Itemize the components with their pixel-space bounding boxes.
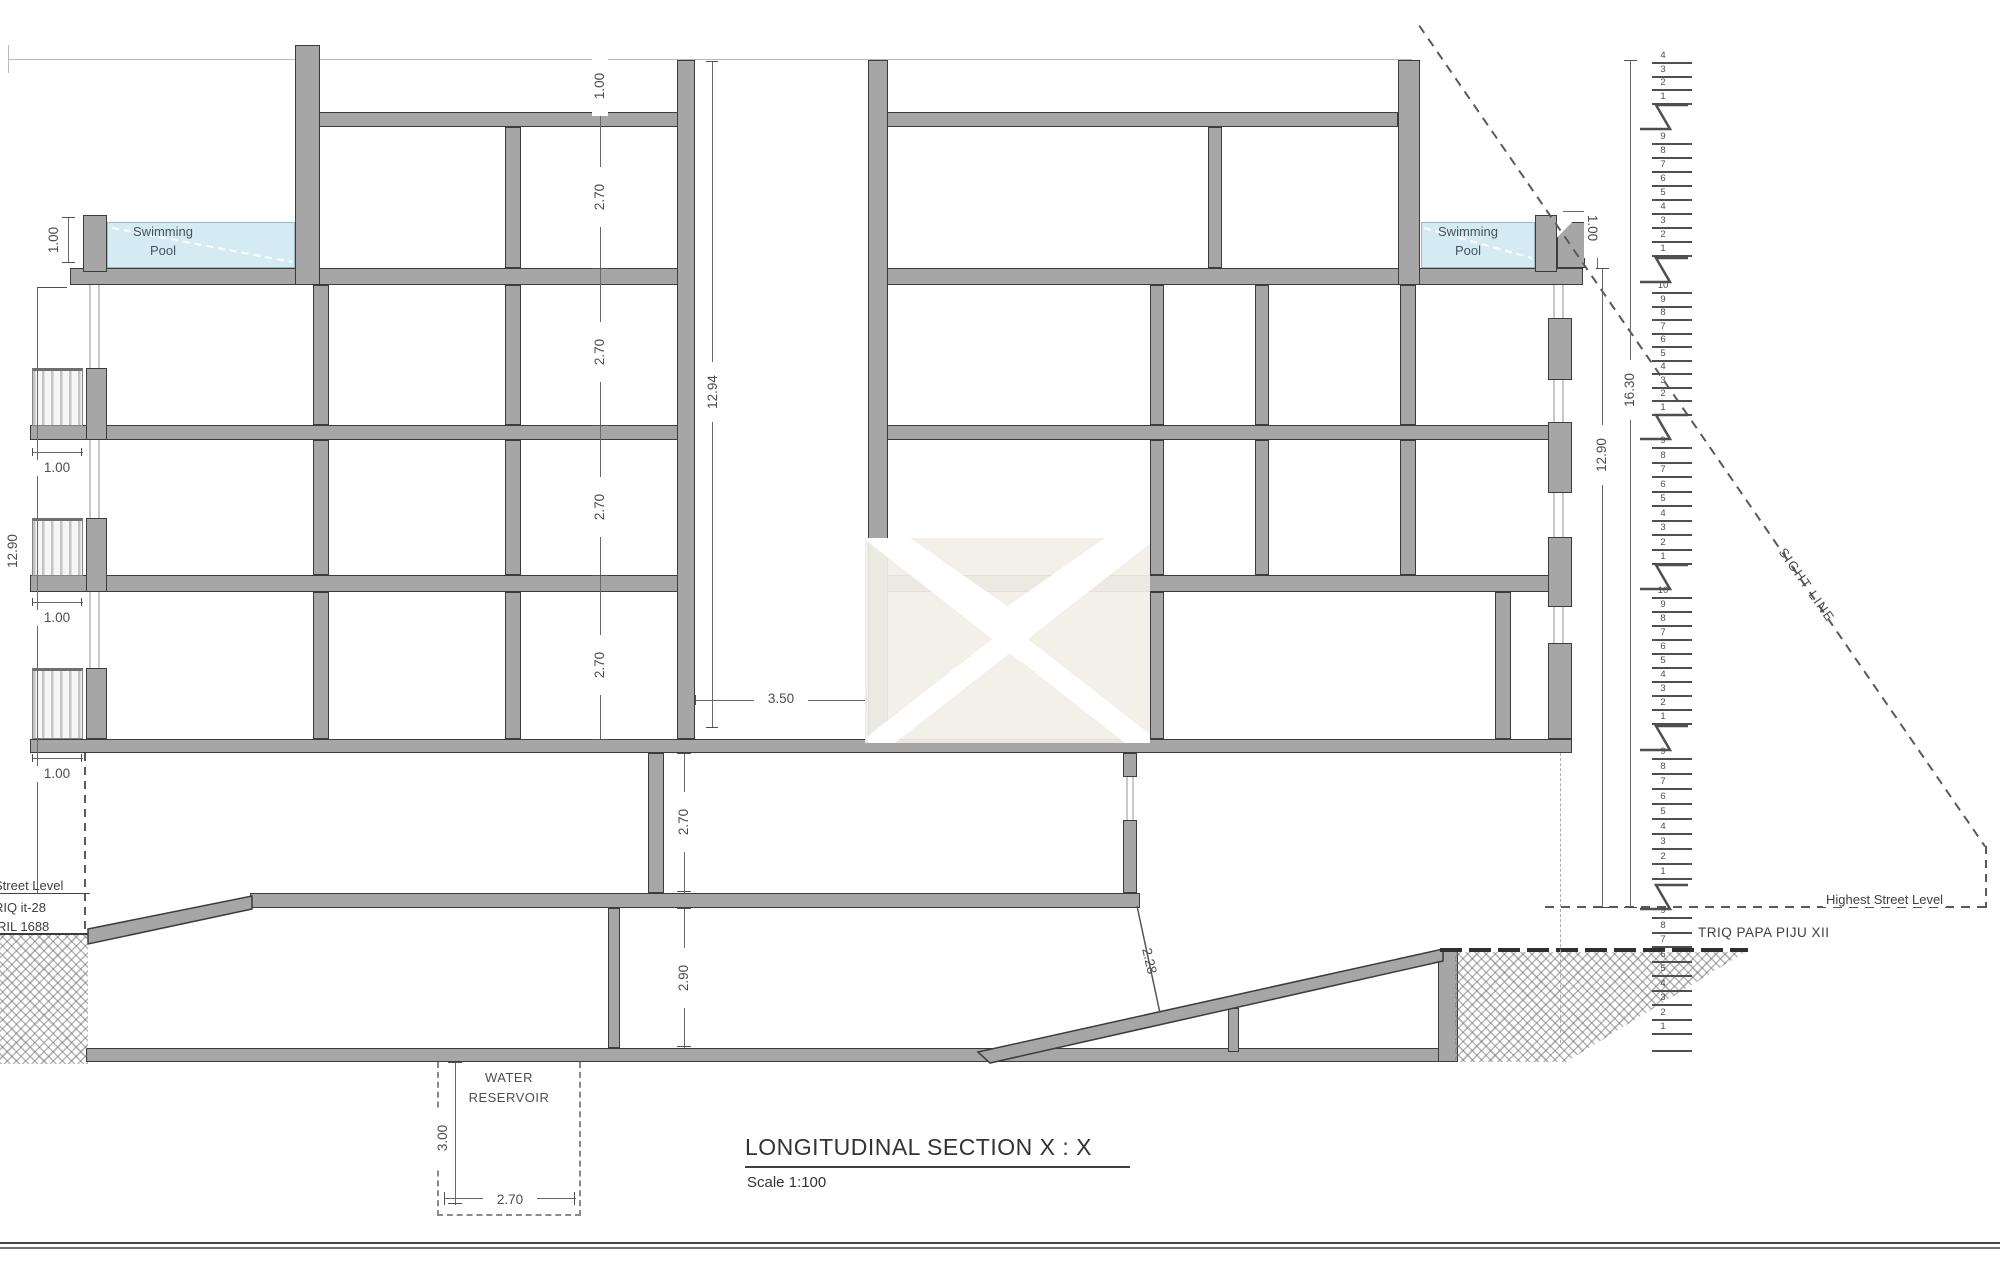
- dimension-tick: [448, 1062, 462, 1063]
- column: [1150, 285, 1164, 425]
- balcony-railing: [32, 518, 83, 576]
- dimension-tick: [574, 1192, 575, 1205]
- stair-step-number: 7: [1653, 464, 1673, 475]
- column: [505, 127, 521, 268]
- dimension-tick: [695, 695, 696, 705]
- basement-wall: [1123, 753, 1137, 777]
- stair-step-number: 1: [1653, 711, 1673, 722]
- dim-floor-height: 2.70: [592, 477, 608, 537]
- ramp-support-post: [1228, 1008, 1239, 1052]
- roof-slab-left: [308, 112, 695, 127]
- stair-step-number: 4: [1653, 978, 1673, 989]
- facade-pier: [1548, 318, 1572, 380]
- stair-step-number: 5: [1653, 963, 1673, 974]
- dimension-line: [32, 452, 83, 453]
- stair-section-ruler: 4321987654321109876543219876543211098765…: [1646, 0, 1694, 1265]
- foundation-slab: [86, 1048, 1458, 1062]
- stair-step-number: 7: [1653, 321, 1673, 332]
- dimension-tick: [1596, 268, 1609, 269]
- site-boundary-dashed-left: [84, 753, 86, 935]
- reservoir-outline: [437, 1214, 581, 1216]
- swimming-pool-label-right-line2: Pool: [1415, 243, 1521, 258]
- stair-step-number: 5: [1653, 187, 1673, 198]
- stair-step-number: 6: [1653, 334, 1673, 345]
- column: [313, 592, 329, 739]
- dimension-line: [455, 1062, 456, 1205]
- stair-step-line: [1652, 788, 1692, 790]
- dimension-tick: [592, 425, 608, 426]
- pool-deck-slab-left: [70, 268, 695, 285]
- dim-balcony-width: 1.00: [32, 766, 82, 782]
- swimming-pool-label-right-line1: Swimming: [1415, 224, 1521, 239]
- sight-line-vertical-end: [1985, 846, 1987, 908]
- swimming-pool-label-left-line1: Swimming: [113, 224, 213, 239]
- dim-pool-depth: 1.00: [46, 210, 62, 270]
- stair-step-number: 8: [1653, 613, 1673, 624]
- ground-floor-slab: [30, 739, 1572, 753]
- stair-step-number: 5: [1653, 655, 1673, 666]
- roof-slab-right: [868, 112, 1398, 127]
- dim-floor-height: 2.70: [592, 635, 608, 695]
- stair-step-number: 8: [1653, 307, 1673, 318]
- dim-reservoir-depth: 3.00: [435, 1108, 451, 1168]
- car-ramp-slab: [978, 949, 1443, 1063]
- dimension-tick: [706, 61, 718, 62]
- window-opening: [1553, 285, 1564, 318]
- floor-slab: [30, 425, 695, 440]
- stair-step-line: [1652, 758, 1692, 760]
- water-reservoir-label-line2: RESERVOIR: [444, 1090, 574, 1105]
- column: [505, 440, 521, 575]
- dim-reservoir-width: 2.70: [483, 1192, 537, 1208]
- facade-pier: [1548, 422, 1572, 493]
- stair-step-line: [1652, 818, 1692, 820]
- dimension-tick: [81, 448, 82, 456]
- stair-step-number: 1: [1653, 91, 1673, 102]
- facade-pier: [1548, 537, 1572, 607]
- dimension-line: [68, 217, 69, 263]
- dim-floor-height: 2.70: [592, 167, 608, 227]
- stair-step-line: [1652, 1033, 1692, 1035]
- stair-step-number: 4: [1653, 508, 1673, 519]
- balcony-railing: [32, 368, 83, 426]
- stair-landing-break-icon: [1636, 722, 1692, 754]
- stair-step-number: 4: [1653, 361, 1673, 372]
- pool-deck-slab-right: [868, 268, 1583, 285]
- parapet-top-line-end-tick: [8, 45, 9, 73]
- street-ramp-slab: [88, 896, 252, 944]
- stair-step-number: 2: [1653, 851, 1673, 862]
- stair-step-number: 8: [1653, 920, 1673, 931]
- window-opening: [89, 285, 100, 368]
- window-opening: [1553, 380, 1564, 422]
- stair-step-number: 4: [1653, 50, 1673, 61]
- street-level-label: Street Level: [0, 878, 63, 893]
- sheet-border-line: [0, 1242, 2000, 1249]
- stair-step-number: 6: [1653, 791, 1673, 802]
- dimension-tick: [32, 598, 33, 606]
- basement-wall: [1123, 820, 1137, 893]
- column: [1150, 440, 1164, 575]
- watermark: [865, 538, 1150, 743]
- dimension-tick: [1596, 907, 1609, 908]
- stair-step-number: 5: [1653, 806, 1673, 817]
- dim-gap-width: 3.50: [754, 691, 808, 707]
- column: [1400, 440, 1416, 575]
- stair-step-number: 5: [1653, 348, 1673, 359]
- ground-hatch-right: [1455, 951, 1747, 1062]
- street-name-left-label: TRIQ it-28: [0, 900, 46, 915]
- street-ground-line-right: [1440, 948, 1748, 952]
- basement-opening: [1126, 777, 1134, 820]
- stair-step-line: [1652, 1050, 1692, 1052]
- dim-balcony-width: 1.00: [32, 460, 82, 476]
- section-drawing-canvas: 1.00 2.70 2.70 2.70 2.70 12.94 12.90 1.0…: [0, 0, 2000, 1265]
- street-name-right-label: TRIQ PAPA PIJU XII: [1698, 925, 1830, 940]
- stair-step-number: 3: [1653, 836, 1673, 847]
- stair-landing-break-icon: [1636, 411, 1692, 443]
- stair-step-number: 8: [1653, 145, 1673, 156]
- window-opening: [89, 440, 100, 518]
- balcony-railing: [32, 668, 83, 739]
- column: [505, 592, 521, 739]
- stair-step-number: 2: [1653, 537, 1673, 548]
- stair-step-number: 3: [1653, 375, 1673, 386]
- wall: [1495, 592, 1511, 739]
- street-level-underline: [0, 893, 90, 894]
- stair-step-number: 1: [1653, 866, 1673, 877]
- dim-subbasement-height: 2.90: [676, 948, 692, 1008]
- dimension-tick: [677, 908, 691, 909]
- stair-step-number: 3: [1653, 522, 1673, 533]
- column: [313, 440, 329, 575]
- stair-step-number: 4: [1653, 201, 1673, 212]
- pool-wall: [83, 215, 107, 272]
- stair-step-number: 6: [1653, 949, 1673, 960]
- dimension-tick: [61, 262, 75, 263]
- stair-landing-break-icon: [1636, 881, 1692, 913]
- stair-step-number: 6: [1653, 479, 1673, 490]
- stair-step-number: 7: [1653, 776, 1673, 787]
- building-line-dashed-right: [1560, 753, 1561, 1048]
- dimension-line: [32, 602, 83, 603]
- window-opening: [1553, 493, 1564, 537]
- dim-balcony-width: 1.00: [32, 610, 82, 626]
- facade-pier: [1548, 643, 1572, 739]
- stair-step-number: 2: [1653, 697, 1673, 708]
- parapet-top-line: [8, 59, 1412, 60]
- dimension-tick: [81, 598, 82, 606]
- stair-step-line: [1652, 863, 1692, 865]
- dimension-line: [1602, 268, 1603, 908]
- dimension-tick: [677, 1046, 691, 1047]
- dim-right-total-height: 12.90: [1594, 425, 1610, 485]
- watermark-stroke: [998, 538, 1131, 627]
- column: [1208, 127, 1222, 268]
- drawing-scale: Scale 1:100: [747, 1174, 826, 1191]
- stair-step-number: 6: [1653, 641, 1673, 652]
- stair-step-number: 8: [1653, 761, 1673, 772]
- dimension-tick: [32, 754, 33, 762]
- stair-step-number: 1: [1653, 1021, 1673, 1032]
- facade-pier: [86, 368, 107, 440]
- stair-step-number: 3: [1653, 992, 1673, 1003]
- basement-column: [608, 908, 620, 1048]
- dimension-tick: [592, 268, 608, 269]
- column: [505, 285, 521, 425]
- watermark-stroke: [883, 538, 1016, 627]
- dimension-tick: [677, 753, 691, 754]
- street-ref-left-label: RIL 1688: [0, 919, 49, 934]
- sight-line-label: SIGHT LINE: [1776, 545, 1838, 625]
- reservoir-outline: [579, 1062, 581, 1216]
- stair-step-number: 9: [1653, 599, 1673, 610]
- dim-basement-height: 2.70: [676, 792, 692, 852]
- dimension-tick: [592, 739, 608, 740]
- dimension-line: [32, 758, 83, 759]
- stair-step-number: 2: [1653, 388, 1673, 399]
- water-reservoir-label-line1: WATER: [459, 1070, 559, 1085]
- stair-step-number: 4: [1653, 821, 1673, 832]
- dimension-line: [1630, 60, 1631, 908]
- stair-step-line: [1652, 803, 1692, 805]
- dim-left-total-height: 12.90: [5, 521, 21, 581]
- dim-floor-height: 2.70: [592, 322, 608, 382]
- core-wall: [295, 45, 320, 285]
- stair-step-line: [1652, 878, 1692, 880]
- dimension-tick: [1624, 60, 1637, 61]
- floor-slab: [30, 575, 695, 592]
- stair-step-number: 4: [1653, 669, 1673, 680]
- dim-parapet-height: 1.00: [592, 56, 608, 116]
- window-opening: [89, 592, 100, 668]
- stair-step-number: 9: [1653, 294, 1673, 305]
- column: [1255, 440, 1269, 575]
- dimension-tick: [444, 1192, 445, 1205]
- stair-step-number: 7: [1653, 627, 1673, 638]
- stair-step-number: 2: [1653, 1007, 1673, 1018]
- swimming-pool-label-left-line2: Pool: [113, 243, 213, 258]
- column: [1400, 285, 1416, 425]
- stair-landing-break-icon: [1636, 101, 1692, 133]
- basement-wall: [648, 753, 664, 893]
- stair-step-line: [1652, 773, 1692, 775]
- facade-pier: [86, 668, 107, 739]
- stair-step-number: 3: [1653, 64, 1673, 75]
- stair-landing-break-icon: [1636, 561, 1692, 593]
- dimension-tick: [592, 575, 608, 576]
- drawing-title: LONGITUDINAL SECTION X : X: [745, 1134, 1130, 1168]
- party-wall-left-building: [677, 60, 695, 739]
- dimension-tick: [61, 217, 75, 218]
- stair-step-number: 3: [1653, 215, 1673, 226]
- column: [1150, 592, 1164, 739]
- street-level-slab: [250, 893, 1140, 908]
- stair-step-line: [1652, 848, 1692, 850]
- dim-internal-height: 12.94: [705, 362, 721, 422]
- highest-street-level-label: Highest Street Level: [1823, 892, 1946, 907]
- floor-slab: [868, 425, 1572, 440]
- dimension-tick: [677, 891, 691, 892]
- stair-step-number: 2: [1653, 77, 1673, 88]
- dimension-tick: [706, 727, 718, 728]
- stair-step-number: 5: [1653, 493, 1673, 504]
- facade-pier: [86, 518, 107, 592]
- dim-pool-parapet-right: 1.00: [1584, 198, 1600, 258]
- dimension-tick: [32, 448, 33, 456]
- dimension-tick: [448, 1203, 462, 1204]
- window-opening: [1553, 607, 1564, 643]
- stair-landing-break-icon: [1636, 254, 1692, 286]
- stair-step-number: 8: [1653, 450, 1673, 461]
- column: [1255, 285, 1269, 425]
- stair-step-number: 3: [1653, 683, 1673, 694]
- stair-step-number: 1: [1653, 243, 1673, 254]
- dimension-line: [37, 287, 38, 893]
- ground-hatch-left: [0, 933, 88, 1064]
- stair-step-number: 2: [1653, 229, 1673, 240]
- stair-step-number: 7: [1653, 934, 1673, 945]
- stair-step-line: [1652, 833, 1692, 835]
- column: [313, 285, 329, 425]
- dimension-tick: [81, 754, 82, 762]
- stair-step-number: 7: [1653, 159, 1673, 170]
- dimension-tick: [37, 287, 67, 288]
- dim-ramp-clearance: 2.28: [1134, 930, 1163, 992]
- stair-step-number: 6: [1653, 173, 1673, 184]
